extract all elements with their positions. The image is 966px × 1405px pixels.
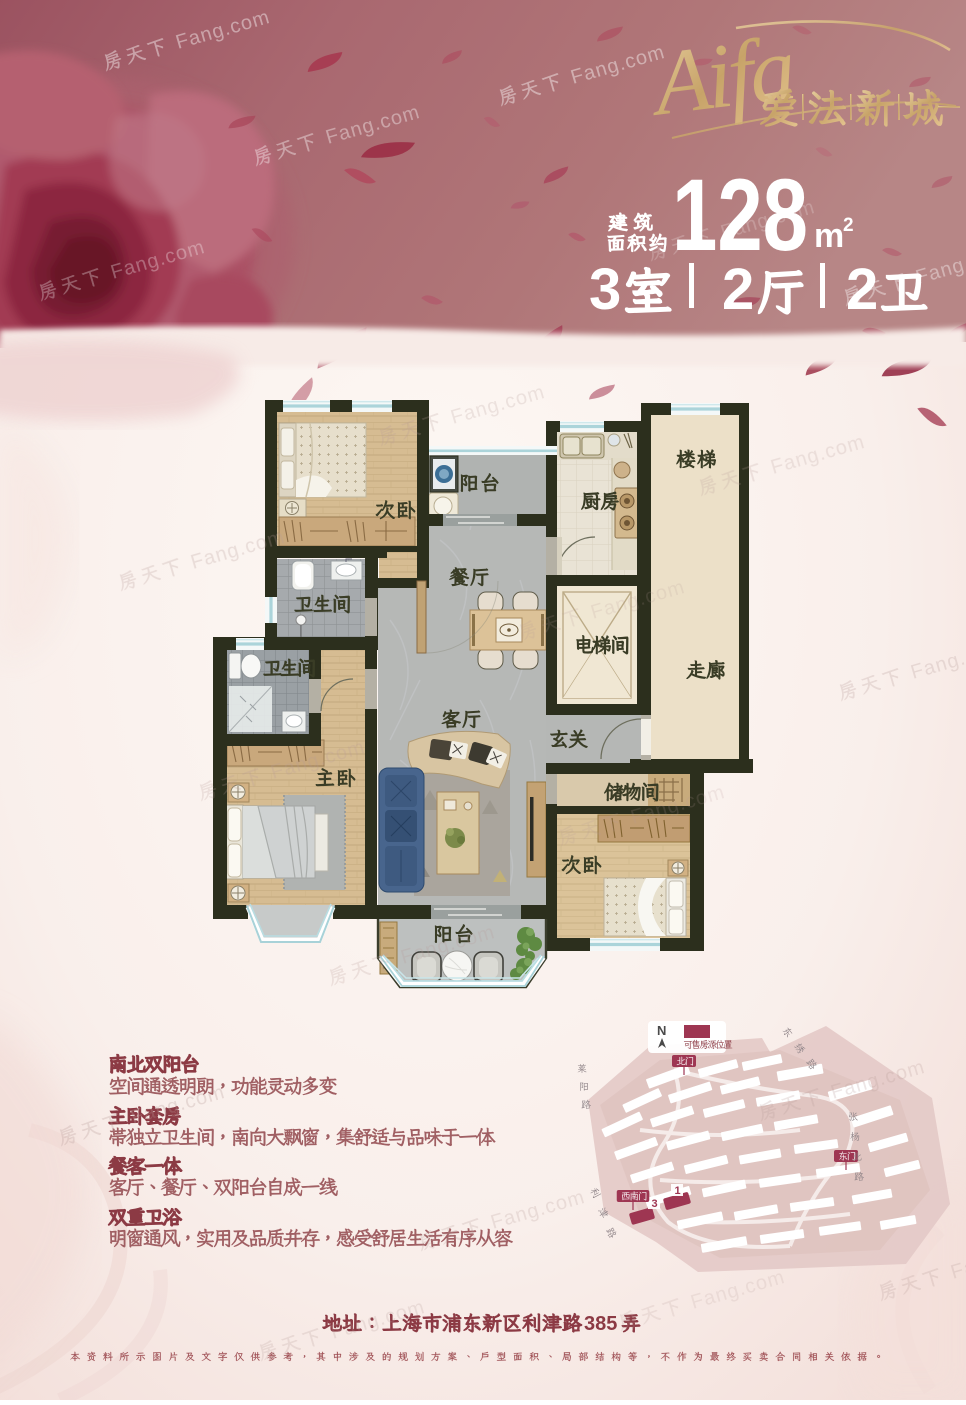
svg-text:2: 2 <box>843 215 854 236</box>
svg-text:3: 3 <box>589 257 621 322</box>
svg-text:2: 2 <box>722 257 754 322</box>
svg-text:N: N <box>657 1023 666 1038</box>
svg-text:385: 385 <box>584 1313 617 1335</box>
svg-text:3: 3 <box>652 1198 658 1210</box>
svg-text:m: m <box>814 217 844 255</box>
svg-text:1: 1 <box>675 1185 681 1197</box>
